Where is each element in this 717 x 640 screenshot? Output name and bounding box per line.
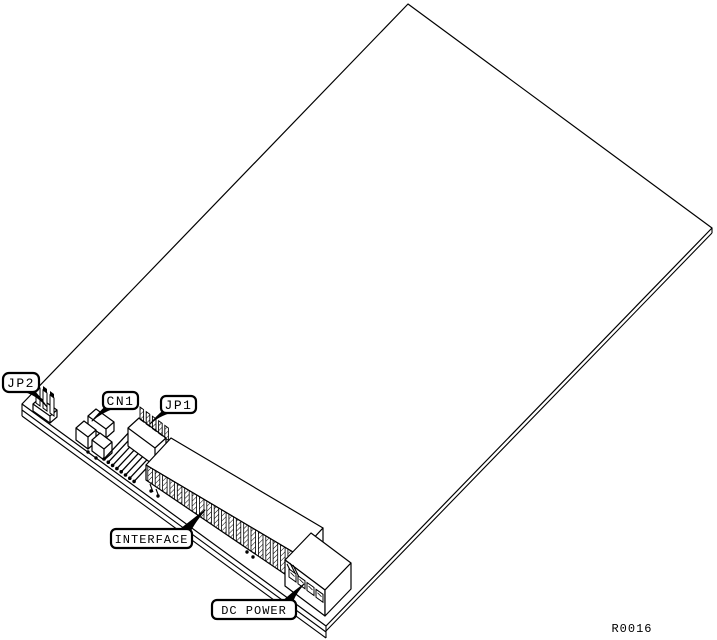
callout-jp2-label: JP2 bbox=[7, 376, 35, 391]
pin-contact-mark bbox=[245, 550, 248, 553]
interface-pin bbox=[222, 510, 227, 535]
pcb-connector-diagram: JP2 CN1 JP1 INTERFACE DC POWER R0016 bbox=[0, 0, 717, 640]
interface-pin bbox=[251, 527, 256, 554]
pin-contact-mark bbox=[86, 450, 89, 453]
pin-contact-mark bbox=[149, 489, 152, 492]
pin-contact-mark bbox=[156, 494, 159, 497]
interface-pin bbox=[170, 479, 175, 499]
interface-pin bbox=[192, 492, 197, 514]
interface-pin bbox=[229, 514, 234, 539]
interface-pin bbox=[155, 470, 160, 489]
jp2-pin bbox=[50, 395, 54, 416]
jp1-pin-foot bbox=[128, 476, 132, 480]
jp1-top-pin bbox=[159, 421, 163, 436]
interface-pin bbox=[273, 540, 278, 569]
interface-pin bbox=[163, 475, 168, 495]
interface-pin bbox=[258, 532, 263, 560]
figure-reference: R0016 bbox=[611, 622, 652, 636]
callout-cn1-label: CN1 bbox=[107, 394, 135, 409]
jp1-pin-foot bbox=[102, 457, 106, 461]
jp1-pin-foot bbox=[107, 460, 111, 464]
jp1-top-pin bbox=[146, 412, 150, 427]
callout-jp1-label: JP1 bbox=[165, 398, 193, 413]
callout-interface-label: INTERFACE bbox=[115, 533, 189, 547]
jp2-pin bbox=[43, 390, 47, 411]
jp1-pin-foot bbox=[132, 480, 136, 484]
jp1-pin-foot bbox=[124, 473, 128, 477]
interface-pin bbox=[185, 488, 190, 509]
pin-contact-mark bbox=[251, 555, 254, 558]
interface-pin bbox=[244, 523, 249, 550]
interface-pin bbox=[266, 536, 271, 564]
interface-pin bbox=[177, 484, 182, 505]
interface-pin bbox=[148, 466, 153, 484]
jp1-pin-foot bbox=[115, 467, 119, 471]
interface-pin bbox=[214, 505, 219, 529]
pin-contact-mark bbox=[94, 456, 97, 459]
interface-pin bbox=[207, 501, 212, 524]
callout-dc-power-label: DC POWER bbox=[221, 604, 287, 618]
interface-pin bbox=[236, 519, 241, 545]
jp1-pin-foot bbox=[111, 464, 115, 468]
jp1-top-pin bbox=[165, 425, 169, 440]
jp1-top-pin bbox=[140, 407, 144, 422]
jp1-pin-foot bbox=[119, 470, 123, 474]
